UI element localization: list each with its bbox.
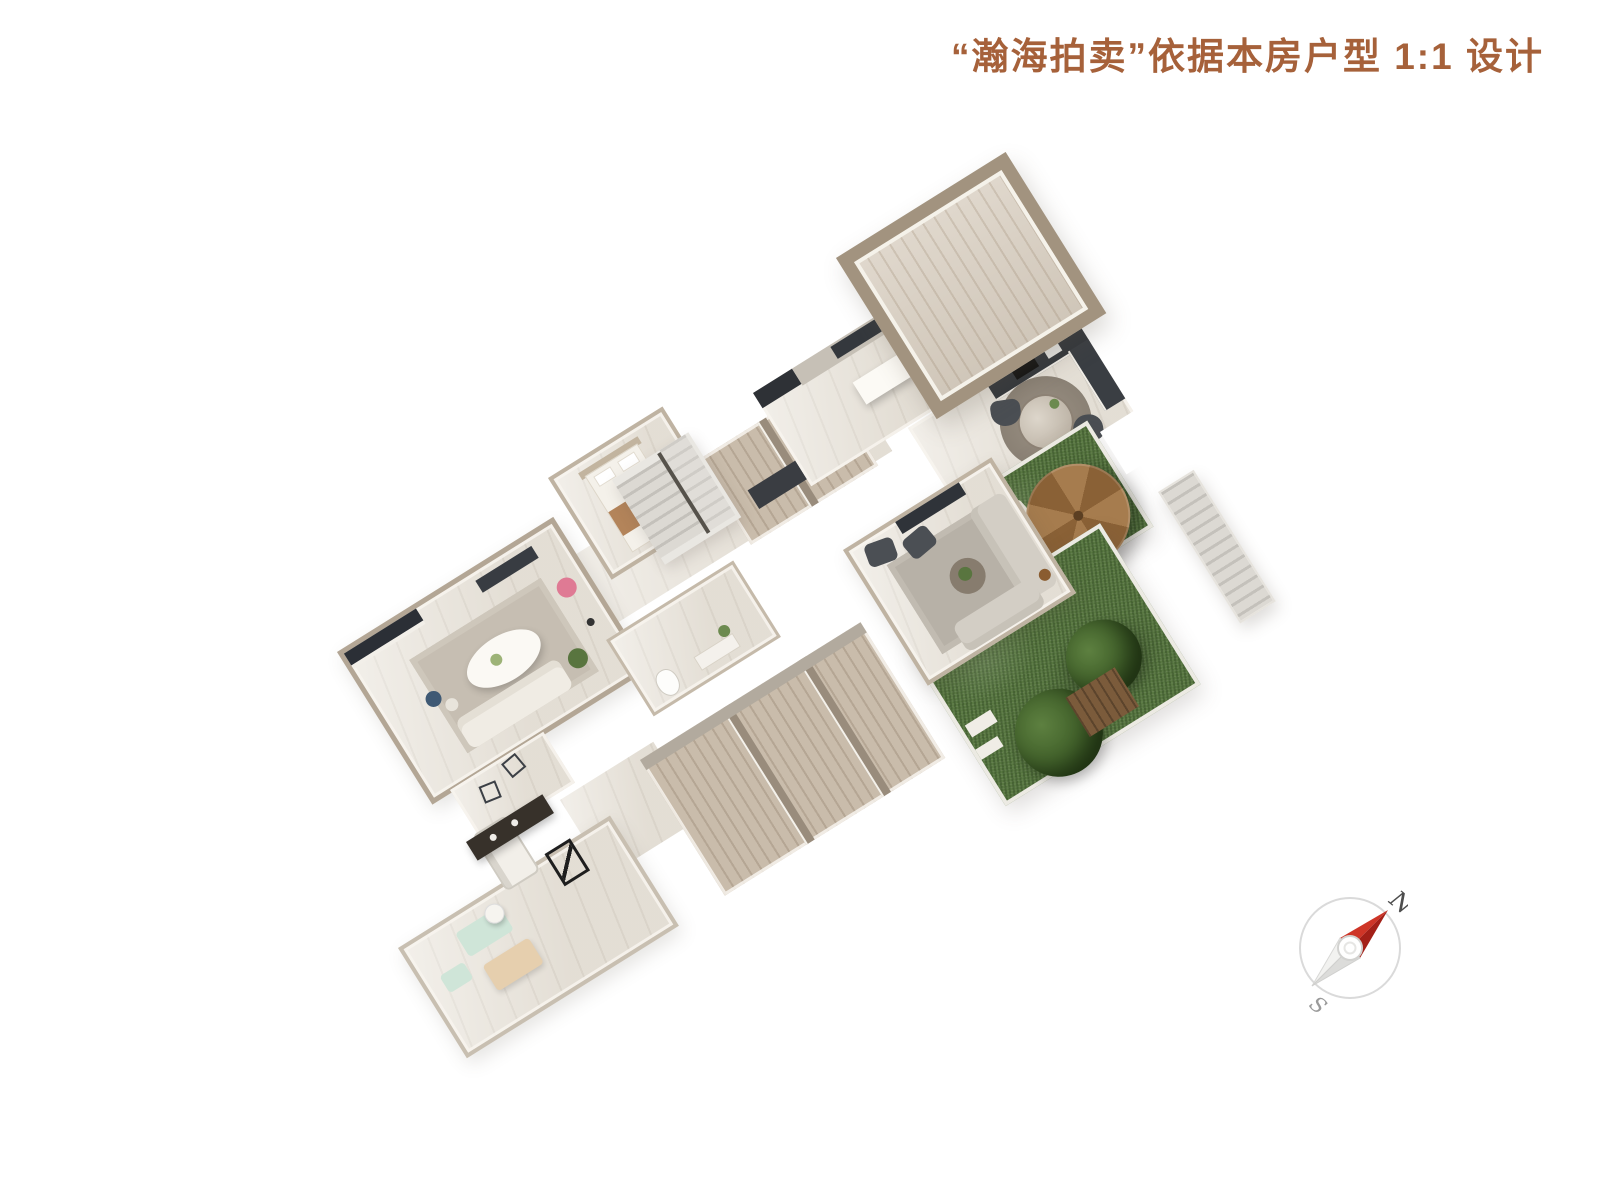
exercise-machine — [545, 838, 591, 886]
compass-hub-inner — [1345, 943, 1356, 954]
parasol-pole — [1071, 509, 1085, 523]
tan-lounger — [482, 937, 544, 991]
cup — [488, 833, 498, 843]
yoga-mat — [439, 962, 473, 994]
title-caption: “瀚海拍卖”依据本房户型 1:1 设计 — [951, 26, 1544, 80]
pillow — [593, 466, 616, 487]
vanity — [693, 633, 740, 671]
plan-cutout — [1100, 368, 1228, 474]
compass-south-label: S — [1305, 991, 1331, 1016]
compass-rose: N S — [1288, 866, 1408, 1016]
x-chair — [501, 753, 526, 778]
wall-divider — [721, 704, 814, 845]
cup — [510, 818, 520, 828]
floor-lamp — [585, 617, 596, 628]
staircase-outdoor — [1158, 470, 1276, 624]
toilet — [651, 665, 684, 700]
pink-armchair — [553, 574, 581, 602]
entry-cabinet-dark — [753, 369, 802, 409]
floorplan-poster: 瀚海 瀚海拍卖® 瀚海 海拍卖 N S “瀚海拍卖”依据本房户型 1:1 设计 — [0, 0, 1600, 1200]
planter — [975, 736, 1003, 760]
wall-divider — [798, 656, 891, 797]
planter — [965, 710, 998, 738]
x-chair — [478, 780, 501, 803]
